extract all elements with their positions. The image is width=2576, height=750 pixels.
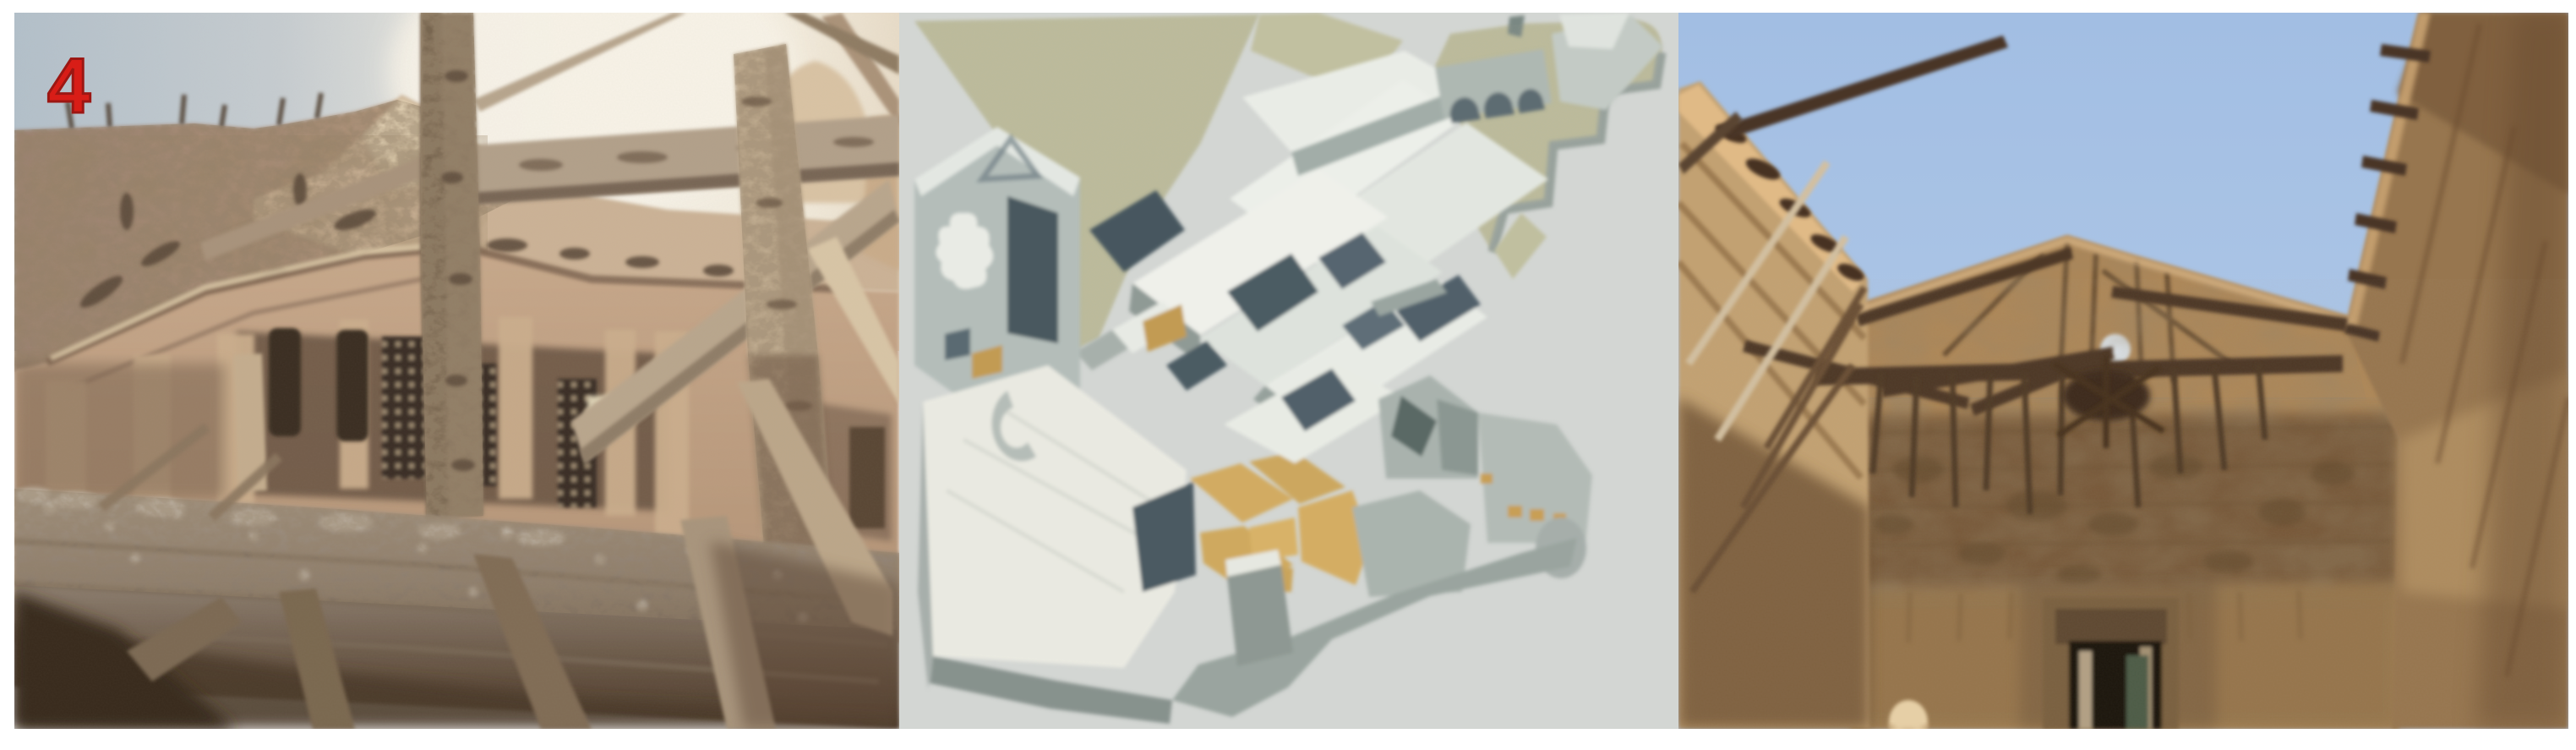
svg-text:4: 4 <box>47 43 90 129</box>
